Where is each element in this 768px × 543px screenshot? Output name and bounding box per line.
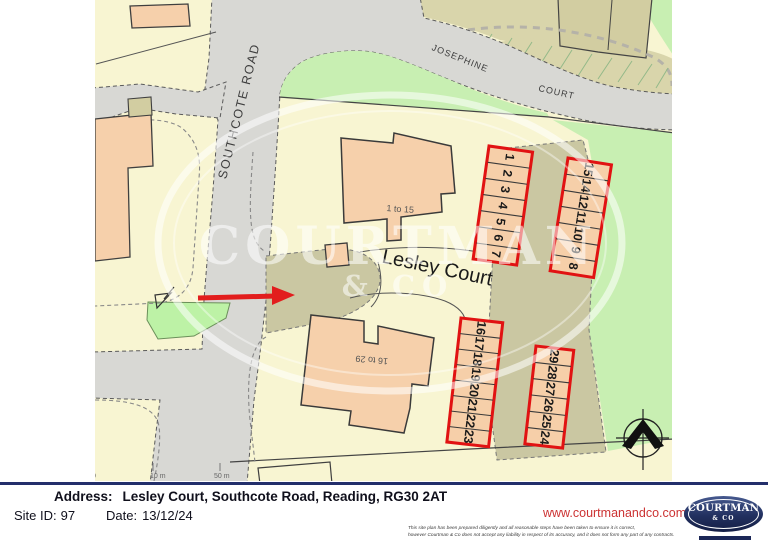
site-id-row: Site ID:97 [14, 508, 75, 523]
svg-text:0: 0 [92, 473, 96, 480]
parking-bay-number: 16 [473, 320, 488, 335]
disclaimer: This site plan has been prepared diligen… [408, 525, 708, 539]
parking-bay-number: 21 [464, 398, 479, 413]
logo-bar [699, 536, 751, 540]
parking-bay-number: 12 [575, 194, 591, 210]
site-plan-map: 1234567 151412111098 1617181920212223 29… [0, 0, 768, 481]
parking-bay-number: 23 [461, 429, 476, 444]
building-topleft [130, 4, 190, 28]
site-id-label: Site ID: [14, 508, 57, 523]
courtman-logo: COURTMAN & CO [684, 496, 763, 532]
address-row: Address:Lesley Court, Southcote Road, Re… [54, 489, 447, 504]
logo-name: COURTMAN [684, 503, 763, 514]
footer-divider [0, 482, 768, 485]
address-value: Lesley Court, Southcote Road, Reading, R… [123, 489, 448, 504]
date-label: Date: [106, 508, 137, 523]
disclaimer-line-2: however Courtman & Co does not accept an… [408, 532, 708, 539]
site-id-value: 97 [61, 508, 75, 523]
website-link[interactable]: www.courtmanandco.com [543, 506, 686, 520]
parking-bay-number: 25 [539, 414, 554, 429]
parking-bay-number: 17 [471, 336, 486, 351]
disclaimer-line-1: This site plan has been prepared diligen… [408, 525, 708, 532]
shed-midleft [128, 97, 152, 117]
building-north-label: 1 to 15 [386, 203, 414, 215]
date-value: 13/12/24 [142, 508, 193, 523]
logo-sub: & CO [684, 515, 763, 522]
parking-bay-number: 26 [541, 397, 556, 412]
watermark-sub: & CO [342, 269, 455, 303]
parking-bay-number: 24 [537, 430, 552, 445]
address-label: Address: [54, 489, 113, 504]
watermark-name: COURTMAN [199, 216, 597, 277]
parking-bay-number: 27 [542, 381, 557, 396]
date-row: Date:13/12/24 [106, 508, 193, 523]
parking-bay-number: 22 [463, 413, 478, 428]
svg-text:10 m: 10 m [150, 473, 166, 480]
parking-bay-number: 28 [544, 365, 559, 380]
site-plan-page: 1234567 151412111098 1617181920212223 29… [0, 0, 768, 543]
svg-text:50 m: 50 m [214, 473, 230, 480]
